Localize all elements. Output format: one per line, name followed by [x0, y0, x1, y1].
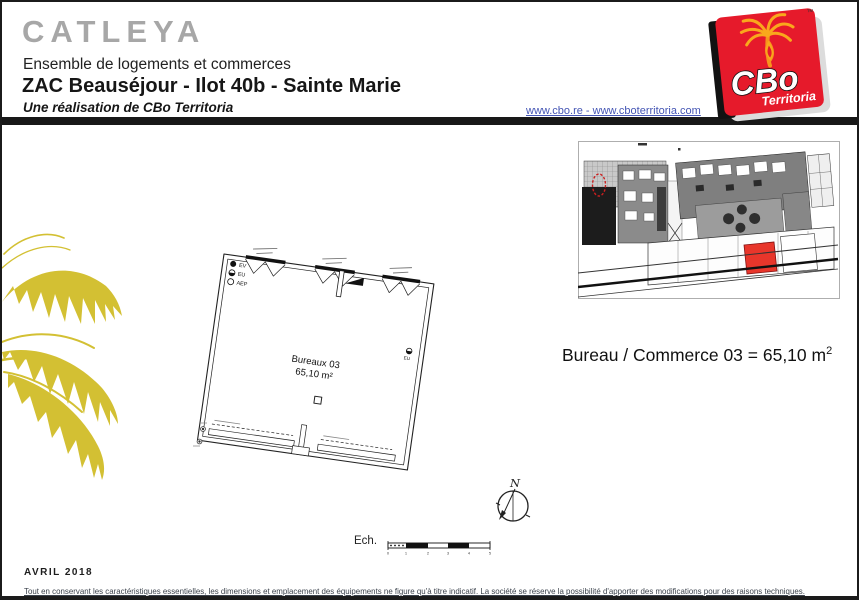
- project-subtitle: Ensemble de logements et commerces: [23, 56, 291, 74]
- svg-text:5: 5: [489, 551, 492, 556]
- site-plan-thumbnail: [578, 141, 840, 299]
- developer-line: Une réalisation de CBo Territoria: [23, 100, 233, 115]
- trademark-symbol: ™: [806, 9, 814, 17]
- scale-tick-labels: 0 1 2 3 4 5: [387, 551, 492, 556]
- footer-disclaimer-text: Tout en conservant les caractéristiques …: [24, 586, 805, 596]
- compass-rose: N: [488, 476, 544, 532]
- footer-disclaimer: Tout en conservant les caractéristiques …: [24, 581, 856, 599]
- project-location: ZAC Beauséjour - Ilot 40b - Sainte Marie: [22, 75, 401, 98]
- scale-bar: 0 1 2 3 4 5: [386, 539, 501, 557]
- svg-text:2: 2: [427, 551, 430, 556]
- north-label: N: [509, 476, 521, 490]
- adjacent-unit: [780, 234, 817, 273]
- document-page: CATLEYA Ensemble de logements et commerc…: [0, 0, 859, 600]
- svg-text:3: 3: [447, 551, 450, 556]
- unit-summary-text: Bureau / Commerce 03 = 65,10 m: [562, 345, 826, 365]
- equipment-square: [314, 396, 322, 404]
- unit-summary-sup: 2: [826, 345, 832, 357]
- legend-label-eu: EU: [237, 272, 245, 279]
- scale-label: Ech.: [354, 535, 377, 547]
- floor-plan: EV EU AEP EU Bureaux 03 65,10 m²: [178, 236, 450, 492]
- svg-text:1: 1: [405, 551, 408, 556]
- footer-date: AVRIL 2018: [24, 567, 93, 578]
- palm-frond-watermark: [2, 224, 130, 490]
- cbo-territoria-logo: CBo Territoria ™: [698, 8, 834, 126]
- svg-text:4: 4: [468, 551, 471, 556]
- aep-symbol: [227, 278, 234, 285]
- legend-label-ev: EV: [239, 263, 247, 270]
- website-links[interactable]: www.cbo.re - www.cboterritoria.com: [526, 105, 701, 117]
- eu-wall-marker-label: EU: [403, 355, 410, 361]
- svg-text:0: 0: [387, 551, 390, 556]
- unit-summary: Bureau / Commerce 03 = 65,10 m2: [562, 345, 832, 366]
- page-title: CATLEYA: [22, 14, 205, 50]
